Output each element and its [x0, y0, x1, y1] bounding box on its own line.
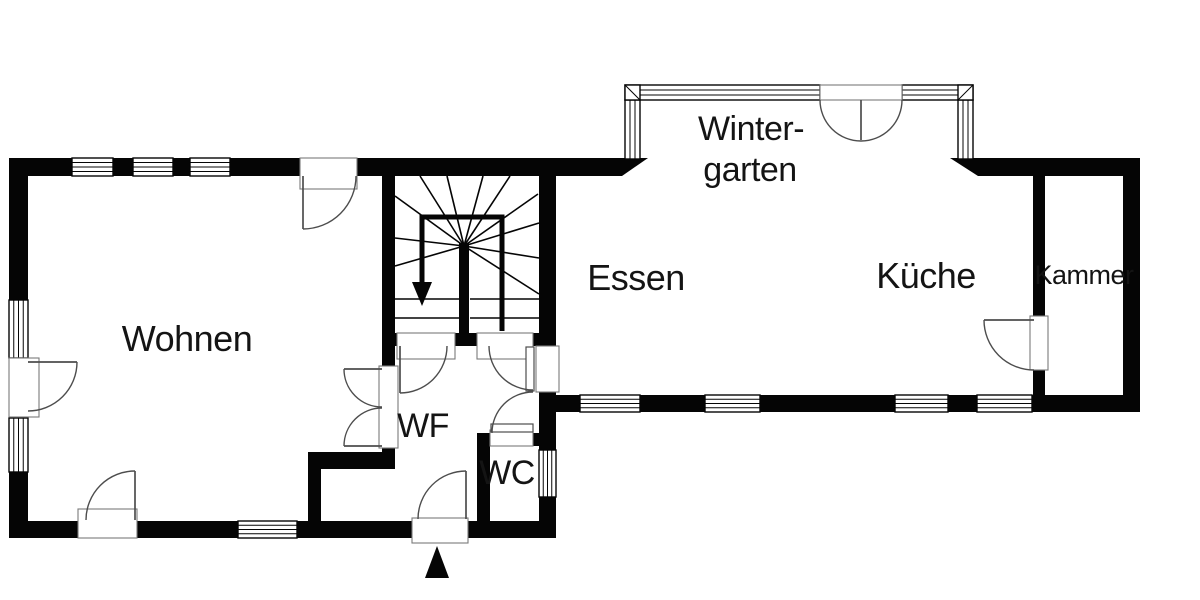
- window: [895, 395, 948, 412]
- staircase: [395, 176, 539, 333]
- wall-segment: [308, 452, 395, 469]
- wall-segment: [1033, 370, 1045, 395]
- room-label-wf: WF: [397, 407, 449, 445]
- wall-segment: [950, 158, 1140, 176]
- wall-segment: [113, 158, 133, 176]
- wall-segment: [382, 176, 395, 333]
- room-label-wintergarten-line1: Winter-: [698, 110, 804, 148]
- wall-segment: [382, 346, 395, 366]
- door-stairhall-wf: [397, 333, 455, 393]
- door-wintergarten-french: [820, 85, 902, 141]
- door-wohnen-west: [9, 358, 77, 417]
- door-vestibule-essen: [536, 346, 559, 392]
- room-label-essen: Essen: [587, 257, 685, 298]
- stair-newel: [459, 243, 469, 333]
- wall-segment: [455, 333, 477, 346]
- wall-segment: [539, 392, 556, 450]
- wall-segment: [9, 176, 28, 300]
- wall-segment: [556, 395, 580, 412]
- entrance-arrow: [425, 546, 449, 578]
- wall-segment: [1033, 176, 1045, 316]
- wall-segment: [382, 333, 397, 346]
- window: [238, 521, 297, 538]
- wall-segment: [1123, 176, 1140, 412]
- window: [9, 418, 28, 472]
- stair-direction-arrow: [412, 282, 432, 306]
- wall-segment: [9, 521, 78, 538]
- door-wohnen-north: [300, 158, 357, 229]
- room-label-kammer: Kammer: [1034, 260, 1134, 290]
- door-wc: [490, 392, 533, 446]
- wall-segment: [137, 521, 238, 538]
- room-label-kueche: Küche: [876, 255, 976, 296]
- door-main-entrance: [412, 471, 468, 543]
- wall-segment: [539, 176, 556, 346]
- wall-segment: [760, 395, 895, 412]
- window: [190, 158, 230, 176]
- floor-plan-canvas: Wohnen Essen Küche Kammer WF WC Winter- …: [0, 0, 1200, 600]
- window: [72, 158, 113, 176]
- wall-segment: [533, 333, 539, 346]
- room-label-wohnen: Wohnen: [122, 318, 252, 359]
- room-label-wc: WC: [479, 454, 535, 492]
- wall-segment: [1032, 395, 1123, 412]
- door-wohnen-south: [78, 471, 137, 538]
- wall-segment: [230, 158, 300, 176]
- door-double-wohnen-wf: [344, 366, 398, 448]
- wall-segment: [308, 452, 321, 538]
- wall-segment: [948, 395, 977, 412]
- door-stairhall-vestibule: [477, 333, 534, 391]
- wall-segment: [533, 433, 539, 446]
- wall-segment: [640, 395, 705, 412]
- window: [9, 300, 28, 358]
- window: [705, 395, 760, 412]
- window: [977, 395, 1032, 412]
- wall-segment: [539, 497, 556, 538]
- window: [133, 158, 173, 176]
- wall-segment: [556, 158, 648, 176]
- room-label-wintergarten-line2: garten: [703, 151, 796, 189]
- wall-segment: [9, 158, 72, 176]
- door-kammer: [984, 316, 1048, 370]
- wall-segment: [357, 158, 556, 176]
- window: [539, 450, 556, 497]
- wall-segment: [173, 158, 190, 176]
- window: [580, 395, 640, 412]
